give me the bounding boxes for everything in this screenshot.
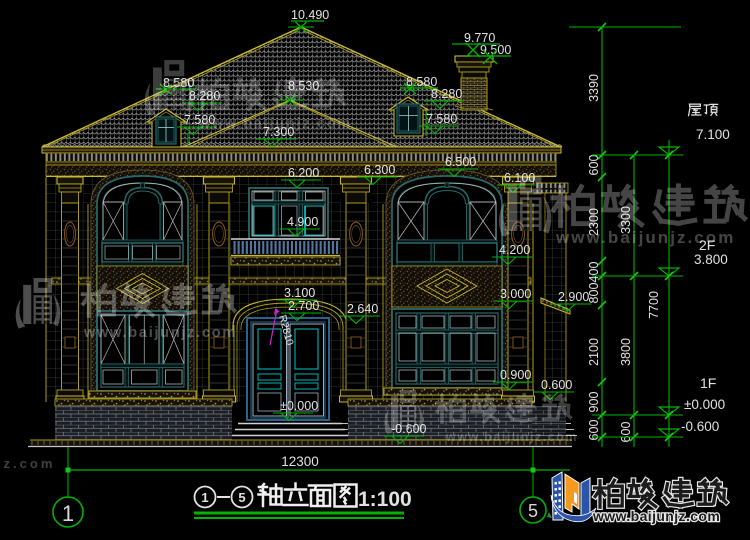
svg-text:2.900: 2.900 — [558, 290, 589, 304]
svg-text:www.baijunjz.com: www.baijunjz.com — [592, 508, 720, 524]
svg-text:www.baijunjz.com: www.baijunjz.com — [555, 228, 735, 247]
svg-text:8.280: 8.280 — [431, 87, 462, 101]
svg-text:4.200: 4.200 — [499, 243, 530, 257]
svg-text:www.baijunjz.com: www.baijunjz.com — [445, 430, 578, 444]
svg-text:3390: 3390 — [587, 74, 601, 102]
svg-text:5: 5 — [528, 501, 538, 521]
svg-text:4.900: 4.900 — [287, 215, 318, 229]
svg-text:±0.000: ±0.000 — [280, 399, 318, 413]
svg-text:0.900: 0.900 — [500, 368, 531, 382]
svg-text:2100: 2100 — [587, 338, 601, 366]
svg-text:1F: 1F — [700, 375, 716, 391]
svg-text:800: 800 — [587, 283, 601, 304]
svg-text:5: 5 — [238, 490, 245, 505]
svg-text:3.100: 3.100 — [284, 286, 315, 300]
svg-text:9.500: 9.500 — [480, 43, 511, 57]
svg-text:400: 400 — [587, 262, 601, 283]
svg-text:2.700: 2.700 — [288, 299, 319, 313]
svg-text:1:100: 1:100 — [358, 488, 412, 511]
svg-text:12300: 12300 — [281, 454, 319, 469]
svg-text:600: 600 — [587, 155, 601, 176]
svg-text:7.100: 7.100 — [696, 127, 730, 142]
svg-text:3.800: 3.800 — [694, 252, 728, 267]
svg-text:6.300: 6.300 — [364, 163, 395, 177]
svg-text:±0.000: ±0.000 — [684, 397, 725, 412]
svg-text:600: 600 — [619, 422, 633, 443]
svg-text:1: 1 — [62, 501, 74, 526]
svg-text:6.200: 6.200 — [288, 166, 319, 180]
svg-text:10.490: 10.490 — [291, 8, 329, 22]
svg-text:njz.com: njz.com — [0, 456, 55, 471]
svg-text:2.640: 2.640 — [347, 302, 378, 316]
svg-text:7700: 7700 — [647, 291, 661, 319]
svg-text:6.500: 6.500 — [445, 155, 476, 169]
svg-text:www.baijunjz.com: www.baijunjz.com — [83, 325, 237, 341]
svg-text:3.000: 3.000 — [500, 287, 531, 301]
svg-text:-0.600: -0.600 — [681, 419, 719, 434]
svg-text:www.baijunjz.com: www.baijunjz.com — [198, 116, 352, 132]
svg-text:7.580: 7.580 — [426, 112, 457, 126]
svg-text:3800: 3800 — [619, 338, 633, 366]
svg-text:1: 1 — [201, 490, 208, 505]
svg-text:0.600: 0.600 — [541, 378, 572, 392]
svg-text:900: 900 — [587, 392, 601, 413]
